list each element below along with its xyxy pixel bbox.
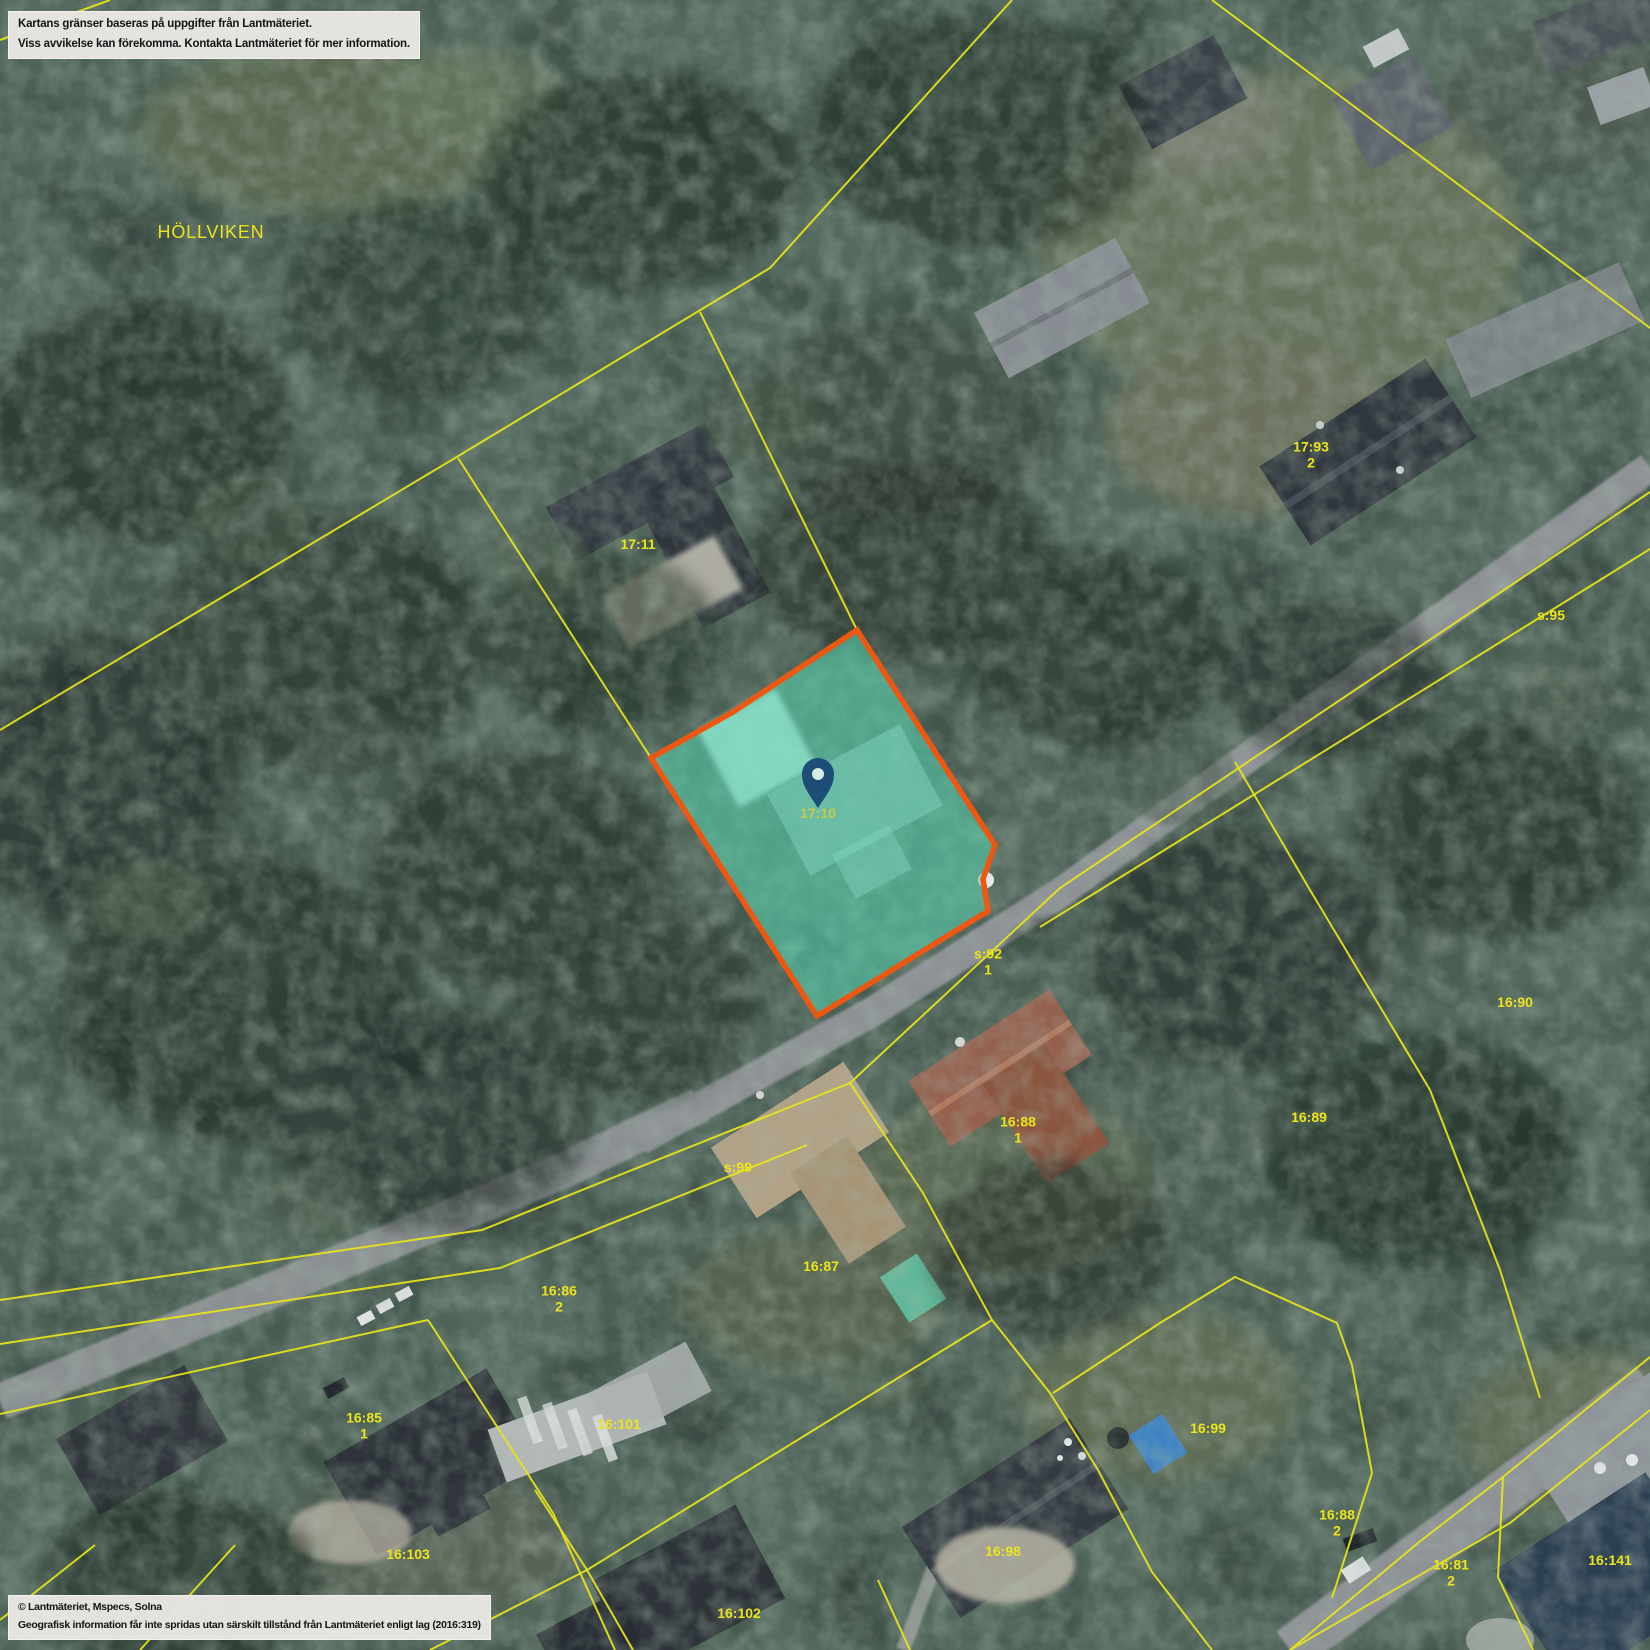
attribution-line-1: © Lantmäteriet, Mspecs, Solna	[18, 1599, 481, 1617]
disclaimer-line-1: Kartans gränser baseras på uppgifter frå…	[18, 15, 410, 35]
attribution-line-2: Geografisk information får inte spridas …	[18, 1617, 481, 1635]
map-disclaimer: Kartans gränser baseras på uppgifter frå…	[8, 11, 420, 59]
map-viewport[interactable]: HÖLLVIKEN17:1117:932s:9517:10s:92116:901…	[0, 0, 1650, 1650]
map-canvas[interactable]	[0, 0, 1650, 1650]
map-attribution: © Lantmäteriet, Mspecs, Solna Geografisk…	[8, 1595, 491, 1640]
disclaimer-line-2: Viss avvikelse kan förekomma. Kontakta L…	[18, 35, 410, 55]
